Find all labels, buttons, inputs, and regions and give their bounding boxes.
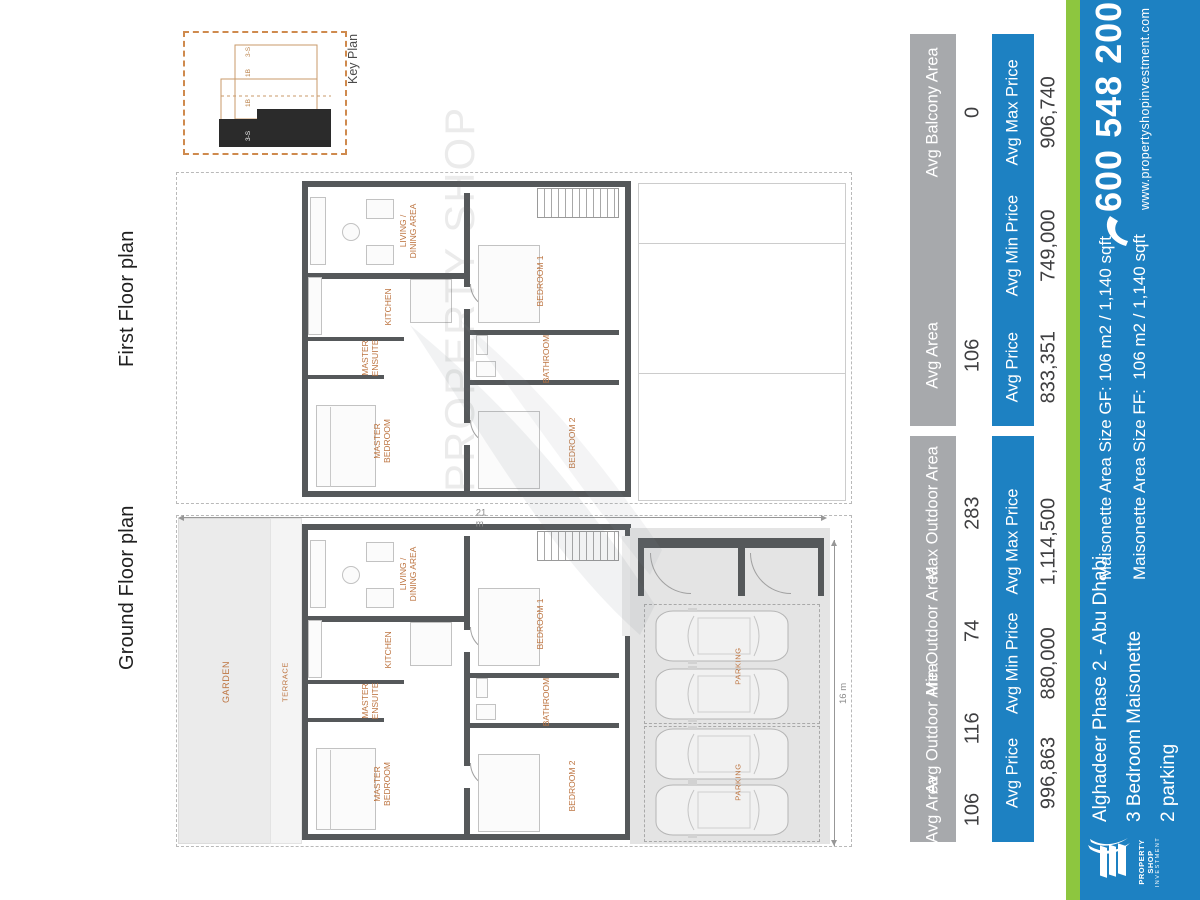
key-plan: 3-S 1B 1B 3-S	[183, 31, 347, 155]
kitchen-counter	[308, 620, 322, 678]
watermark-swoosh	[400, 315, 670, 645]
column-header: Max Outdoor Area	[924, 446, 943, 580]
project-parking: 2 parking	[1158, 744, 1180, 822]
column-header: Avg Min Price	[1004, 613, 1023, 714]
bed	[478, 754, 540, 832]
ground-price-value-row: 996,863 880,000 1,114,500	[1034, 436, 1064, 842]
bed	[316, 748, 376, 830]
first-area-value-row: 106 0	[956, 34, 990, 426]
label-line: MASTER	[372, 419, 382, 463]
stairs	[537, 188, 619, 218]
wall	[308, 680, 404, 684]
terrace-label: TERRACE	[281, 662, 290, 702]
label-line: MASTER	[372, 762, 382, 806]
garage-wall	[738, 538, 745, 596]
dim-arrow	[178, 515, 184, 521]
key-plan-unit-label: 3-S	[245, 47, 252, 57]
label-line: LIVING /	[398, 204, 408, 259]
table-value: 283	[962, 496, 985, 529]
bathroom-label: BATHROOM	[541, 678, 551, 726]
first-price-header-row: Avg Price Avg Min Price Avg Max Price	[992, 34, 1034, 426]
column-header: Avg Max Price	[1004, 59, 1023, 165]
property-shop-logo-icon	[1086, 835, 1132, 889]
living-dining-label: LIVING / DINING AREA	[398, 204, 418, 259]
sink	[476, 678, 488, 698]
column-header: Avg Price	[1004, 332, 1023, 402]
key-plan-unit-label: 1B	[245, 69, 252, 77]
flyer-page: Ground Floor plan First Floor plan 3-S 1…	[0, 0, 1200, 900]
table-value: 116	[962, 712, 985, 744]
company-logo: PROPERTY SHOP INVESTMENT	[1086, 830, 1161, 894]
kitchen-label: KITCHEN	[383, 631, 393, 668]
ground-floor-heading: Ground Floor plan	[116, 505, 139, 670]
label-line: MASTER	[360, 340, 370, 377]
table-value: 74	[962, 620, 985, 642]
column-header: Avg Price	[1004, 738, 1023, 808]
dim-arrow	[821, 515, 827, 521]
dimension-line-horizontal	[834, 540, 835, 846]
table-value: 880,000	[1038, 627, 1061, 699]
column-header: Avg Max Price	[1004, 489, 1023, 595]
column-header: Avg Balcony Area	[924, 47, 943, 177]
bedroom1-label: BEDROOM 1	[535, 255, 545, 306]
column-header: Avg Area	[924, 322, 943, 389]
label-line: DINING AREA	[408, 204, 418, 259]
door-gap	[464, 766, 470, 788]
armchair	[366, 542, 394, 562]
table-value: 906,740	[1038, 76, 1061, 148]
parking-label: PARKING	[734, 763, 743, 800]
parking-label: PARKING	[734, 647, 743, 684]
car-icon	[652, 726, 792, 782]
bed	[478, 245, 540, 323]
master-bedroom-label: MASTER BEDROOM	[372, 762, 392, 806]
dim-arrow	[831, 840, 837, 846]
coffee-table	[342, 223, 360, 241]
table-value: 833,351	[1038, 331, 1061, 403]
logo-name: PROPERTY SHOP	[1137, 830, 1155, 894]
area-size-gf: Maisonette Area Size GF: 106 m2 / 1,140 …	[1096, 236, 1116, 580]
first-price-value-row: 833,351 749,000 906,740	[1034, 34, 1064, 426]
bedroom2-label: BEDROOM 2	[567, 760, 577, 811]
car-icon	[652, 782, 792, 838]
table-value: 0	[962, 107, 985, 118]
label-line: BEDROOM	[382, 762, 392, 806]
dim-arrow	[831, 540, 837, 546]
table-value: 749,000	[1038, 210, 1061, 282]
column-header: Avg Min Price	[1004, 195, 1023, 296]
label-line: ENSUITE	[370, 683, 380, 720]
wall	[308, 337, 404, 341]
coffee-table	[342, 566, 360, 584]
car-icon	[652, 608, 792, 664]
label-line: ENSUITE	[370, 340, 380, 377]
project-title: Alghadeer Phase 2 - Abu Dhabi	[1090, 556, 1112, 822]
armchair	[366, 199, 394, 219]
dim-label-16m: 16 m	[838, 683, 849, 704]
label-line: BEDROOM	[382, 419, 392, 463]
sofa	[310, 540, 326, 608]
table-value: 1,114,500	[1038, 498, 1061, 586]
first-floor-heading: First Floor plan	[116, 230, 139, 367]
flyer-canvas: Ground Floor plan First Floor plan 3-S 1…	[0, 0, 1200, 900]
wc	[476, 704, 496, 720]
car-icon	[652, 666, 792, 722]
key-plan-unit-label: 3-S	[245, 131, 252, 141]
column-header: Min Outdoor Area	[924, 566, 943, 695]
project-type: 3 Bedroom Maisonette	[1124, 631, 1146, 822]
key-plan-drawing	[185, 33, 345, 153]
garden-label: GARDEN	[221, 661, 231, 703]
ground-area-value-row: 106 116 74 283	[956, 436, 990, 842]
garage-door-arc	[750, 553, 791, 594]
green-accent-stripe	[1066, 0, 1080, 900]
ground-area-header-row: Avg Area Avg Outdoor Area Min Outdoor Ar…	[910, 436, 956, 842]
area-size-ff: Maisonette Area Size FF: 106 m2 / 1,140 …	[1130, 234, 1150, 580]
label-line: MASTER	[360, 683, 370, 720]
first-area-header-row: Avg Area Avg Balcony Area	[910, 34, 956, 426]
table-value: 106	[962, 793, 985, 826]
website-link[interactable]: www.propertyshopinvestment.com	[1138, 8, 1152, 210]
sofa	[310, 197, 326, 265]
kitchen-counter	[308, 277, 322, 335]
ground-price-header-row: Avg Price Avg Min Price Avg Max Price	[992, 436, 1034, 842]
footer-band: PROPERTY SHOP INVESTMENT Alghadeer Phase…	[1080, 0, 1200, 900]
master-ensuite-label: MASTER ENSUITE	[360, 683, 380, 720]
garage-wall	[818, 538, 824, 596]
table-value: 996,863	[1038, 737, 1061, 809]
master-bedroom-label: MASTER BEDROOM	[372, 419, 392, 463]
table-value: 106	[962, 339, 985, 372]
door-gap	[464, 287, 470, 309]
armchair	[366, 245, 394, 265]
bed	[316, 405, 376, 487]
master-ensuite-label: MASTER ENSUITE	[360, 340, 380, 377]
armchair	[366, 588, 394, 608]
bed-line	[330, 750, 331, 830]
phone-icon	[1098, 214, 1130, 250]
key-plan-unit-label: 1B	[245, 99, 252, 107]
bed-line	[330, 407, 331, 487]
void-divider	[639, 243, 845, 244]
logo-subname: INVESTMENT	[1155, 830, 1161, 894]
kitchen-label: KITCHEN	[383, 288, 393, 325]
phone-number[interactable]: 600 548 200	[1088, 1, 1130, 212]
key-plan-caption: Key Plan	[346, 34, 360, 84]
